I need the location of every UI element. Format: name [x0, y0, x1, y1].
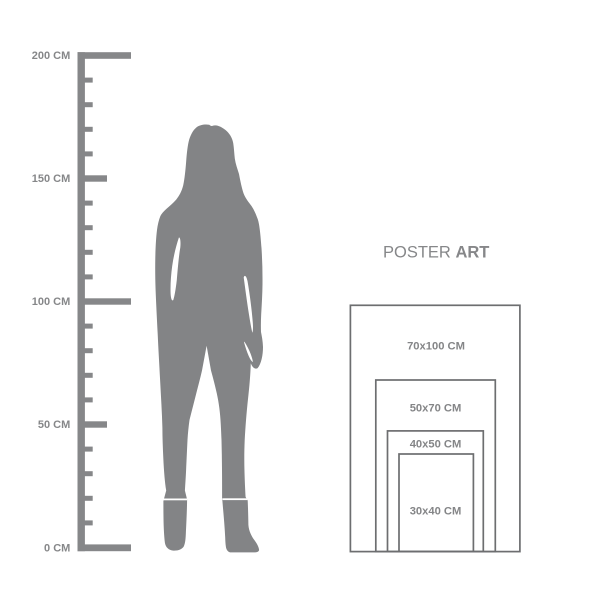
svg-text:50 CM: 50 CM: [38, 419, 70, 431]
svg-text:0 CM: 0 CM: [44, 542, 70, 554]
svg-text:200 CM: 200 CM: [32, 50, 71, 62]
svg-text:70x100 CM: 70x100 CM: [407, 340, 465, 352]
svg-text:40x50 CM: 40x50 CM: [410, 439, 462, 451]
svg-text:POSTER ART: POSTER ART: [383, 244, 489, 262]
svg-text:150 CM: 150 CM: [32, 173, 71, 185]
svg-text:50x70 CM: 50x70 CM: [410, 402, 462, 414]
svg-text:30x40 CM: 30x40 CM: [410, 505, 462, 517]
svg-text:100 CM: 100 CM: [32, 296, 71, 308]
